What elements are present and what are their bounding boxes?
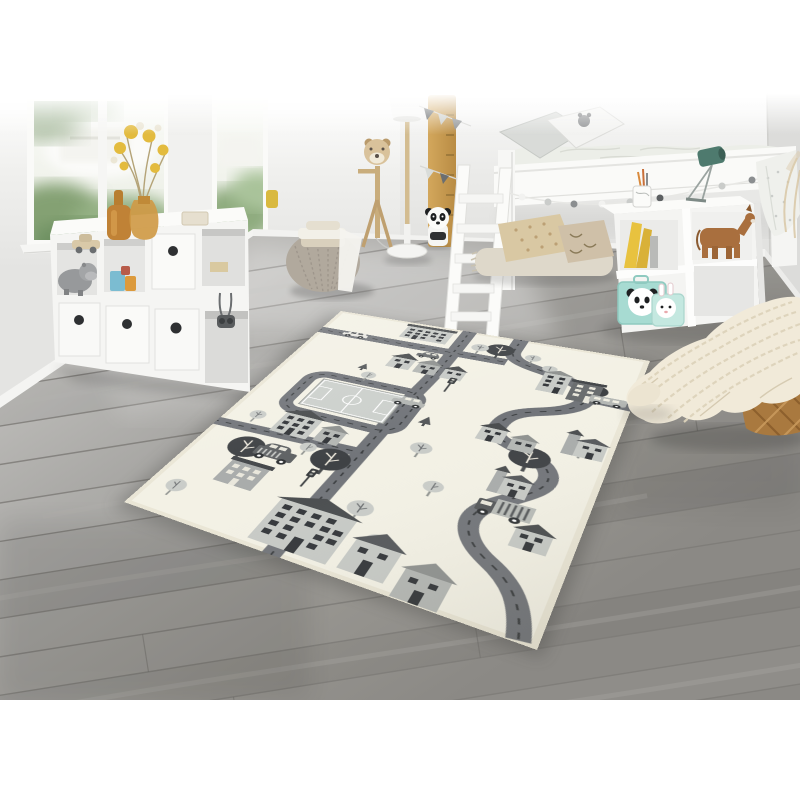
books: [620, 220, 678, 270]
cube-shelf: [600, 196, 780, 343]
drawer: [106, 306, 149, 363]
drawer: [155, 309, 199, 370]
drawer: [59, 303, 100, 356]
cubby-cups: [104, 239, 145, 292]
drawer: [152, 234, 195, 289]
empty-cubby: [694, 266, 754, 316]
lamp-shade: [389, 96, 426, 119]
photo: [0, 0, 800, 800]
cubby-open: [202, 229, 245, 286]
toy-horse: [692, 204, 756, 260]
wooden-box: [182, 212, 208, 225]
yellow-vase: [266, 190, 278, 208]
